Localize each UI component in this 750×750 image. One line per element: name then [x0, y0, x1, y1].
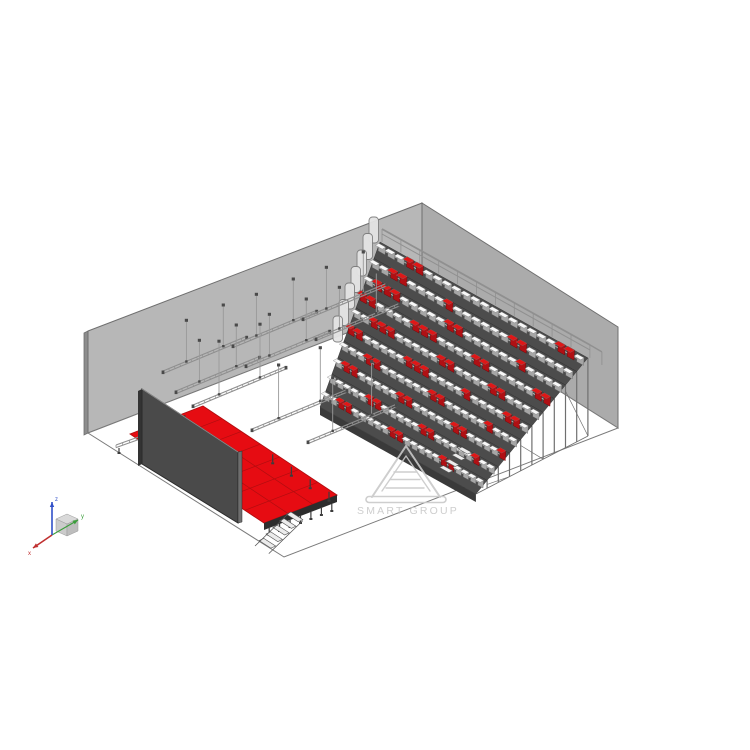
stage-foot [271, 462, 274, 464]
rod-clamp [292, 319, 294, 321]
rod-top-plate [319, 346, 322, 349]
rod-top-plate [305, 298, 308, 301]
axis-label-y: y [81, 514, 84, 520]
rod-top-plate [375, 271, 378, 274]
truss-end-connector [192, 405, 195, 409]
axis-triad: x y z [28, 497, 84, 557]
axis-triad-shapes [33, 502, 78, 548]
truss-end-connector [285, 366, 288, 370]
rod-clamp [259, 376, 261, 378]
truss-end-connector [302, 318, 305, 322]
rod-top-plate [258, 323, 261, 326]
scene-root [84, 203, 618, 557]
truss-end-connector [395, 404, 398, 408]
axis-label-x: x [28, 551, 31, 557]
screen-edge-left [138, 389, 142, 466]
rod-clamp [370, 414, 372, 416]
rod-top-plate [277, 364, 280, 367]
rod-top-plate [362, 251, 365, 254]
rod-clamp [185, 360, 187, 362]
truss-end-connector [232, 345, 235, 349]
rod-top-plate [325, 266, 328, 269]
stage-foot [328, 500, 331, 502]
rod-clamp [338, 327, 340, 329]
rod-clamp [325, 307, 327, 309]
stage-foot [309, 487, 312, 489]
truss-end-connector [398, 303, 401, 307]
rod-clamp [305, 339, 307, 341]
stage-foot [330, 510, 333, 512]
rod-top-plate [338, 286, 341, 289]
rod-clamp [235, 365, 237, 367]
rod-top-plate [292, 278, 295, 281]
rod-clamp [218, 393, 220, 395]
rod-top-plate [217, 340, 220, 343]
rod-clamp [255, 334, 257, 336]
rod-clamp [319, 400, 321, 402]
truss-end-connector [385, 283, 388, 287]
stage-foot [118, 452, 121, 454]
rod-clamp [332, 430, 334, 432]
truss-end-connector [175, 391, 178, 395]
rod-top-plate [198, 339, 201, 342]
truss-end-connector [251, 429, 254, 433]
rod-top-plate [185, 319, 188, 322]
truss-end-connector [245, 365, 248, 369]
stage-foot [309, 518, 312, 520]
left-wall-edge [84, 331, 88, 435]
rod-clamp [362, 292, 364, 294]
stage-foot [290, 475, 293, 477]
rod-top-plate [268, 313, 271, 316]
rod-clamp [198, 380, 200, 382]
truss-end-connector [315, 338, 318, 342]
rod-clamp [268, 354, 270, 356]
venue-render: x y z SMART GROUP [0, 0, 750, 750]
rod-top-plate [255, 293, 258, 296]
axis-label-z: z [55, 497, 58, 503]
truss-end-connector [162, 371, 165, 375]
truss-end-connector [307, 441, 310, 445]
z-axis-arrow-head [50, 502, 54, 507]
watermark-text: SMART GROUP [357, 505, 459, 517]
rod-top-plate [331, 376, 334, 379]
cad-viewport: x y z SMART GROUP [0, 0, 750, 750]
rod-clamp [222, 345, 224, 347]
rod-clamp [277, 417, 279, 419]
stage-foot [320, 514, 323, 516]
rod-top-plate [235, 324, 238, 327]
rod-clamp [375, 312, 377, 314]
truss-end-connector [346, 389, 349, 393]
rod-top-plate [370, 360, 373, 363]
screen-edge-right [238, 451, 242, 523]
rod-top-plate [222, 304, 225, 307]
